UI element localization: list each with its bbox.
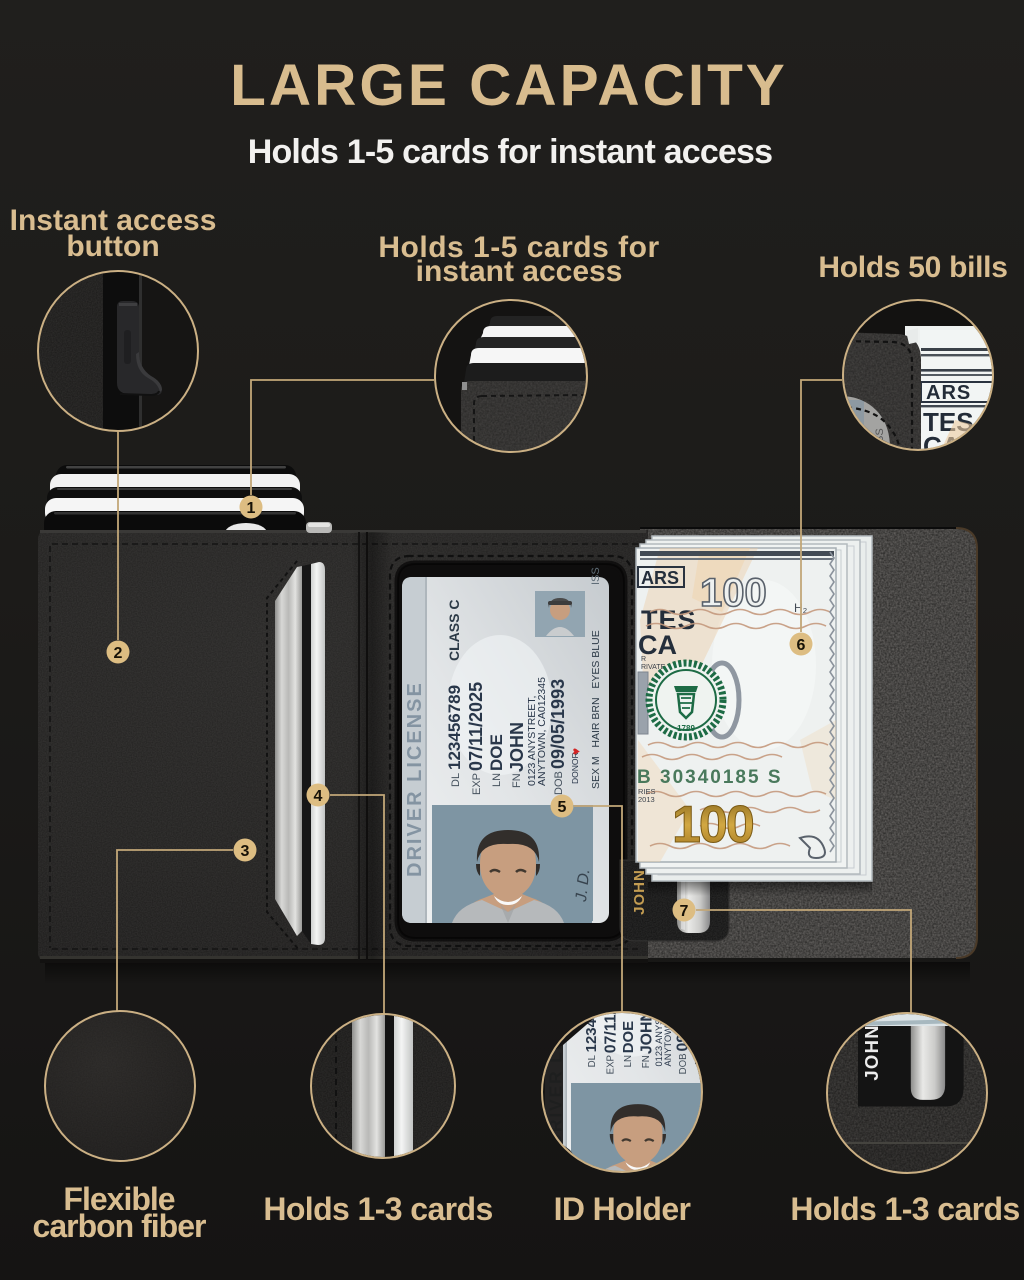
svg-text:Holds 1-3 cards: Holds 1-3 cards xyxy=(263,1191,492,1227)
svg-text:7: 7 xyxy=(680,903,689,920)
svg-text:1: 1 xyxy=(247,500,256,517)
svg-text:ID Holder: ID Holder xyxy=(554,1191,691,1227)
svg-text:LARGE CAPACITY: LARGE CAPACITY xyxy=(230,53,788,118)
svg-text:4: 4 xyxy=(314,788,323,805)
svg-text:ARS: ARS xyxy=(926,382,971,404)
svg-text:5: 5 xyxy=(558,799,567,816)
svg-text:instant access: instant access xyxy=(416,255,623,288)
svg-text:3: 3 xyxy=(241,843,250,860)
svg-text:B 30340185 S: B 30340185 S xyxy=(637,767,783,788)
svg-text:carbon fiber: carbon fiber xyxy=(33,1208,206,1244)
svg-text:Holds 1-5 cards for instant ac: Holds 1-5 cards for instant access xyxy=(248,133,773,171)
svg-text:2: 2 xyxy=(114,645,123,662)
svg-text:button: button xyxy=(66,230,159,263)
svg-text:100: 100 xyxy=(700,571,767,615)
svg-text:Holds 50 bills: Holds 50 bills xyxy=(818,251,1007,284)
svg-text:ARS: ARS xyxy=(641,568,679,588)
svg-text:JOHN: JOHN xyxy=(861,1024,882,1081)
svg-text:Holds 1-3 cards: Holds 1-3 cards xyxy=(790,1191,1019,1227)
svg-text:1789: 1789 xyxy=(677,724,695,733)
svg-text:R: R xyxy=(641,656,646,663)
svg-text:J. D.: J. D. xyxy=(573,868,593,903)
svg-text:2013: 2013 xyxy=(638,795,655,804)
svg-text:100: 100 xyxy=(672,796,753,854)
svg-text:6: 6 xyxy=(797,637,806,654)
